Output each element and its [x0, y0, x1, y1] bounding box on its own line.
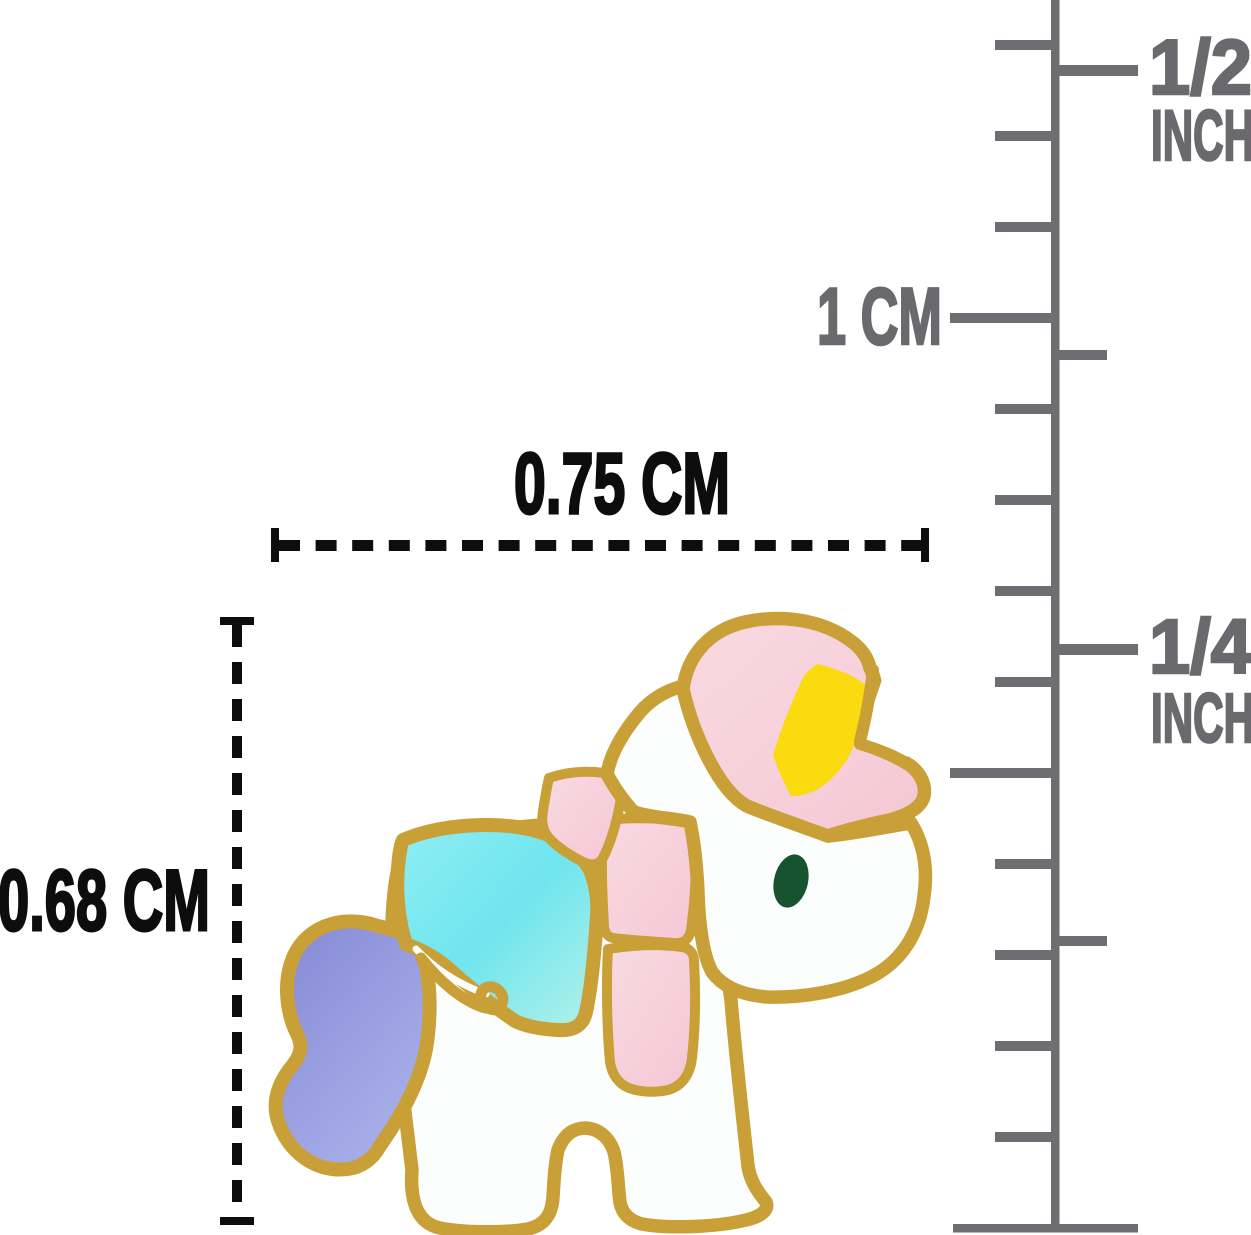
svg-text:1/4: 1/4 — [1149, 604, 1251, 690]
svg-text:0.75 CM: 0.75 CM — [514, 436, 730, 532]
svg-text:INCH: INCH — [1151, 97, 1251, 176]
svg-text:1 CM: 1 CM — [817, 272, 942, 362]
svg-text:INCH: INCH — [1151, 679, 1251, 757]
svg-text:0.68 CM: 0.68 CM — [0, 853, 210, 949]
